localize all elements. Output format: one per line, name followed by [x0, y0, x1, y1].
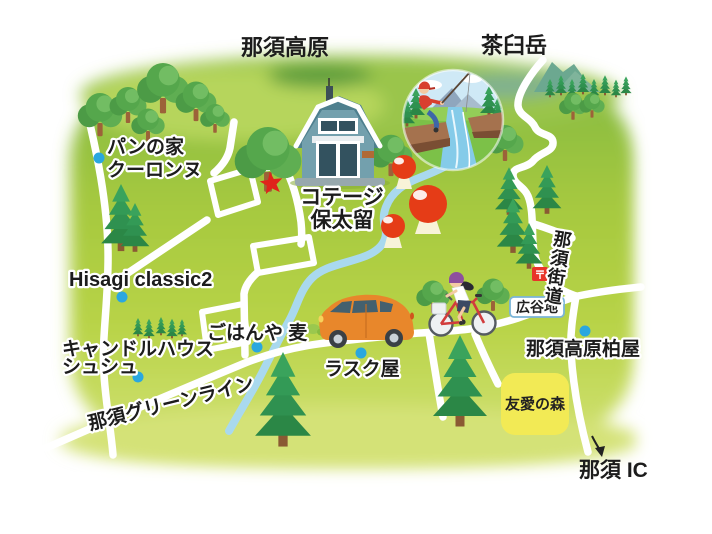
poi-dot-kashiwaya — [580, 326, 591, 337]
gohanya-label: ごはんや 麦 — [207, 321, 308, 344]
nasu-ic-label: 那須 IC — [579, 459, 648, 482]
bakery-label-line2: クーロンヌ — [107, 159, 202, 181]
post-office-mark: 〒 — [535, 269, 546, 282]
nasu-kogen-label: 那須高原 — [241, 35, 329, 60]
kashiwaya-label: 那須高原柏屋 — [526, 337, 640, 360]
nasu-area-illustrated-map: 〒 広谷地 友愛の森 那須高原 茶臼岳 パンの家 クーロンヌ Hisagi cl… — [0, 0, 712, 534]
hisagi-label: Hisagi classic2 — [69, 269, 212, 291]
bakery-label-line1: パンの家 — [107, 135, 185, 158]
yuai-no-mori-label: 友愛の森 — [505, 395, 566, 413]
poi-dot-bakery — [94, 153, 105, 164]
poi-dot-hisagi — [117, 292, 128, 303]
yuai-no-mori-box: 友愛の森 — [501, 373, 569, 435]
poi-dot-rusk — [356, 348, 367, 359]
destination-label-line2: 保太留 — [310, 208, 374, 232]
map-canvas: 〒 広谷地 友愛の森 那須高原 茶臼岳 パンの家 クーロンヌ Hisagi cl… — [0, 0, 712, 534]
bike-basket — [432, 303, 446, 314]
chausudake-label: 茶臼岳 — [481, 33, 547, 58]
destination-label-line1: コテージ — [300, 186, 384, 209]
rusk-label: ラスク屋 — [324, 358, 400, 380]
candle-label-line2: シュシュ — [62, 357, 138, 378]
